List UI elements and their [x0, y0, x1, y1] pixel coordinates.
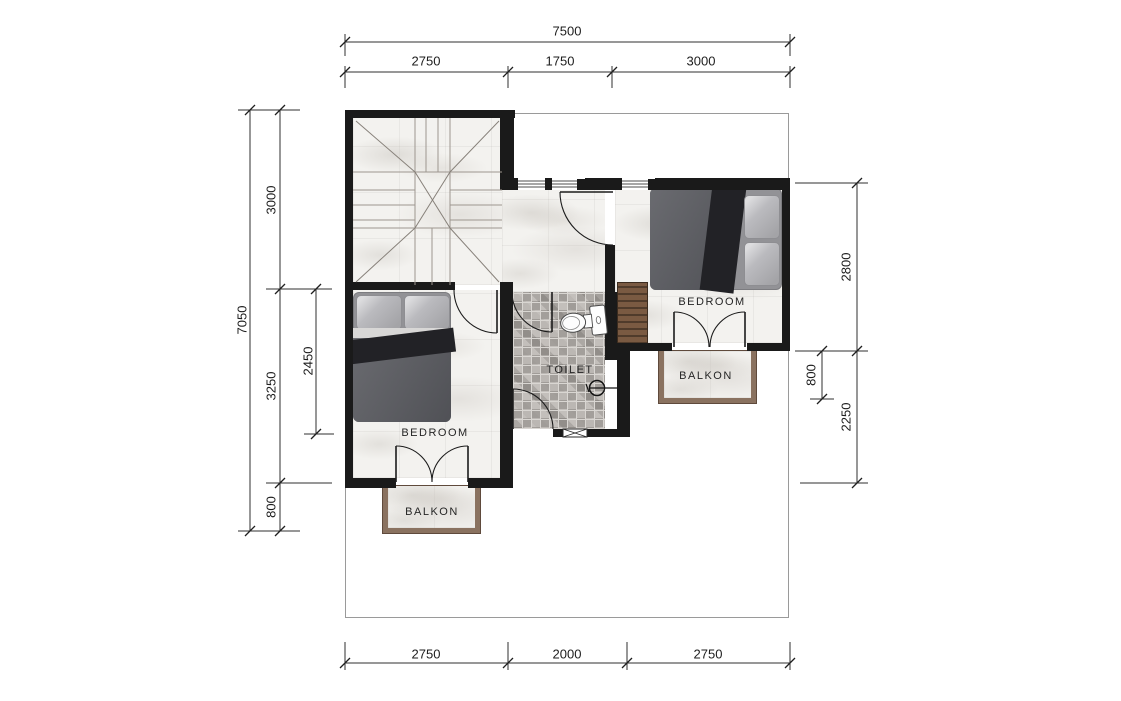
dimension-lines	[238, 34, 868, 670]
dim-bottom-seg-1: 2750	[412, 647, 441, 662]
toilet-window	[563, 429, 587, 437]
room-label-balkon-left: BALKON	[405, 506, 459, 518]
dim-left-seg-2: 3250	[264, 372, 279, 401]
floor-drain	[586, 381, 617, 396]
dim-top-seg-1: 2750	[412, 54, 441, 69]
dim-right-seg-1: 2800	[839, 253, 854, 282]
dim-left-inner: 2450	[301, 347, 316, 376]
room-label-bedroom-top-right: BEDROOM	[678, 296, 745, 308]
dim-left-seg-3: 800	[264, 496, 279, 518]
double-door-balcony-right	[674, 312, 745, 347]
dim-bottom-seg-2: 2000	[553, 647, 582, 662]
dim-left-seg-1: 3000	[264, 186, 279, 215]
floor-plan-canvas: BEDROOM BEDROOM TOILET BALKON BALKON 750…	[0, 0, 1121, 701]
staircase-diagonals	[356, 121, 499, 282]
room-label-balkon-right: BALKON	[679, 370, 733, 382]
door-bedroom-bottom-left	[454, 290, 497, 333]
dim-bottom-seg-3: 2750	[694, 647, 723, 662]
room-label-toilet: TOILET	[546, 364, 593, 376]
dim-top-seg-3: 3000	[687, 54, 716, 69]
door-bedroom-top-right	[560, 192, 613, 245]
double-door-balcony-left	[396, 446, 468, 482]
dim-left-total: 7050	[235, 306, 250, 335]
window-glazing	[518, 181, 648, 187]
door-toilet-service	[513, 389, 553, 429]
door-toilet-entry	[512, 292, 552, 332]
room-label-bedroom-bottom-left: BEDROOM	[401, 427, 468, 439]
dim-top-total: 7500	[553, 24, 582, 39]
dim-right-seg-2: 2250	[839, 403, 854, 432]
dim-right-inner: 800	[804, 364, 819, 386]
plan-linework	[0, 0, 1121, 701]
toilet-fixture	[559, 305, 607, 339]
dim-top-seg-2: 1750	[546, 54, 575, 69]
dimension-ticks	[245, 37, 862, 668]
